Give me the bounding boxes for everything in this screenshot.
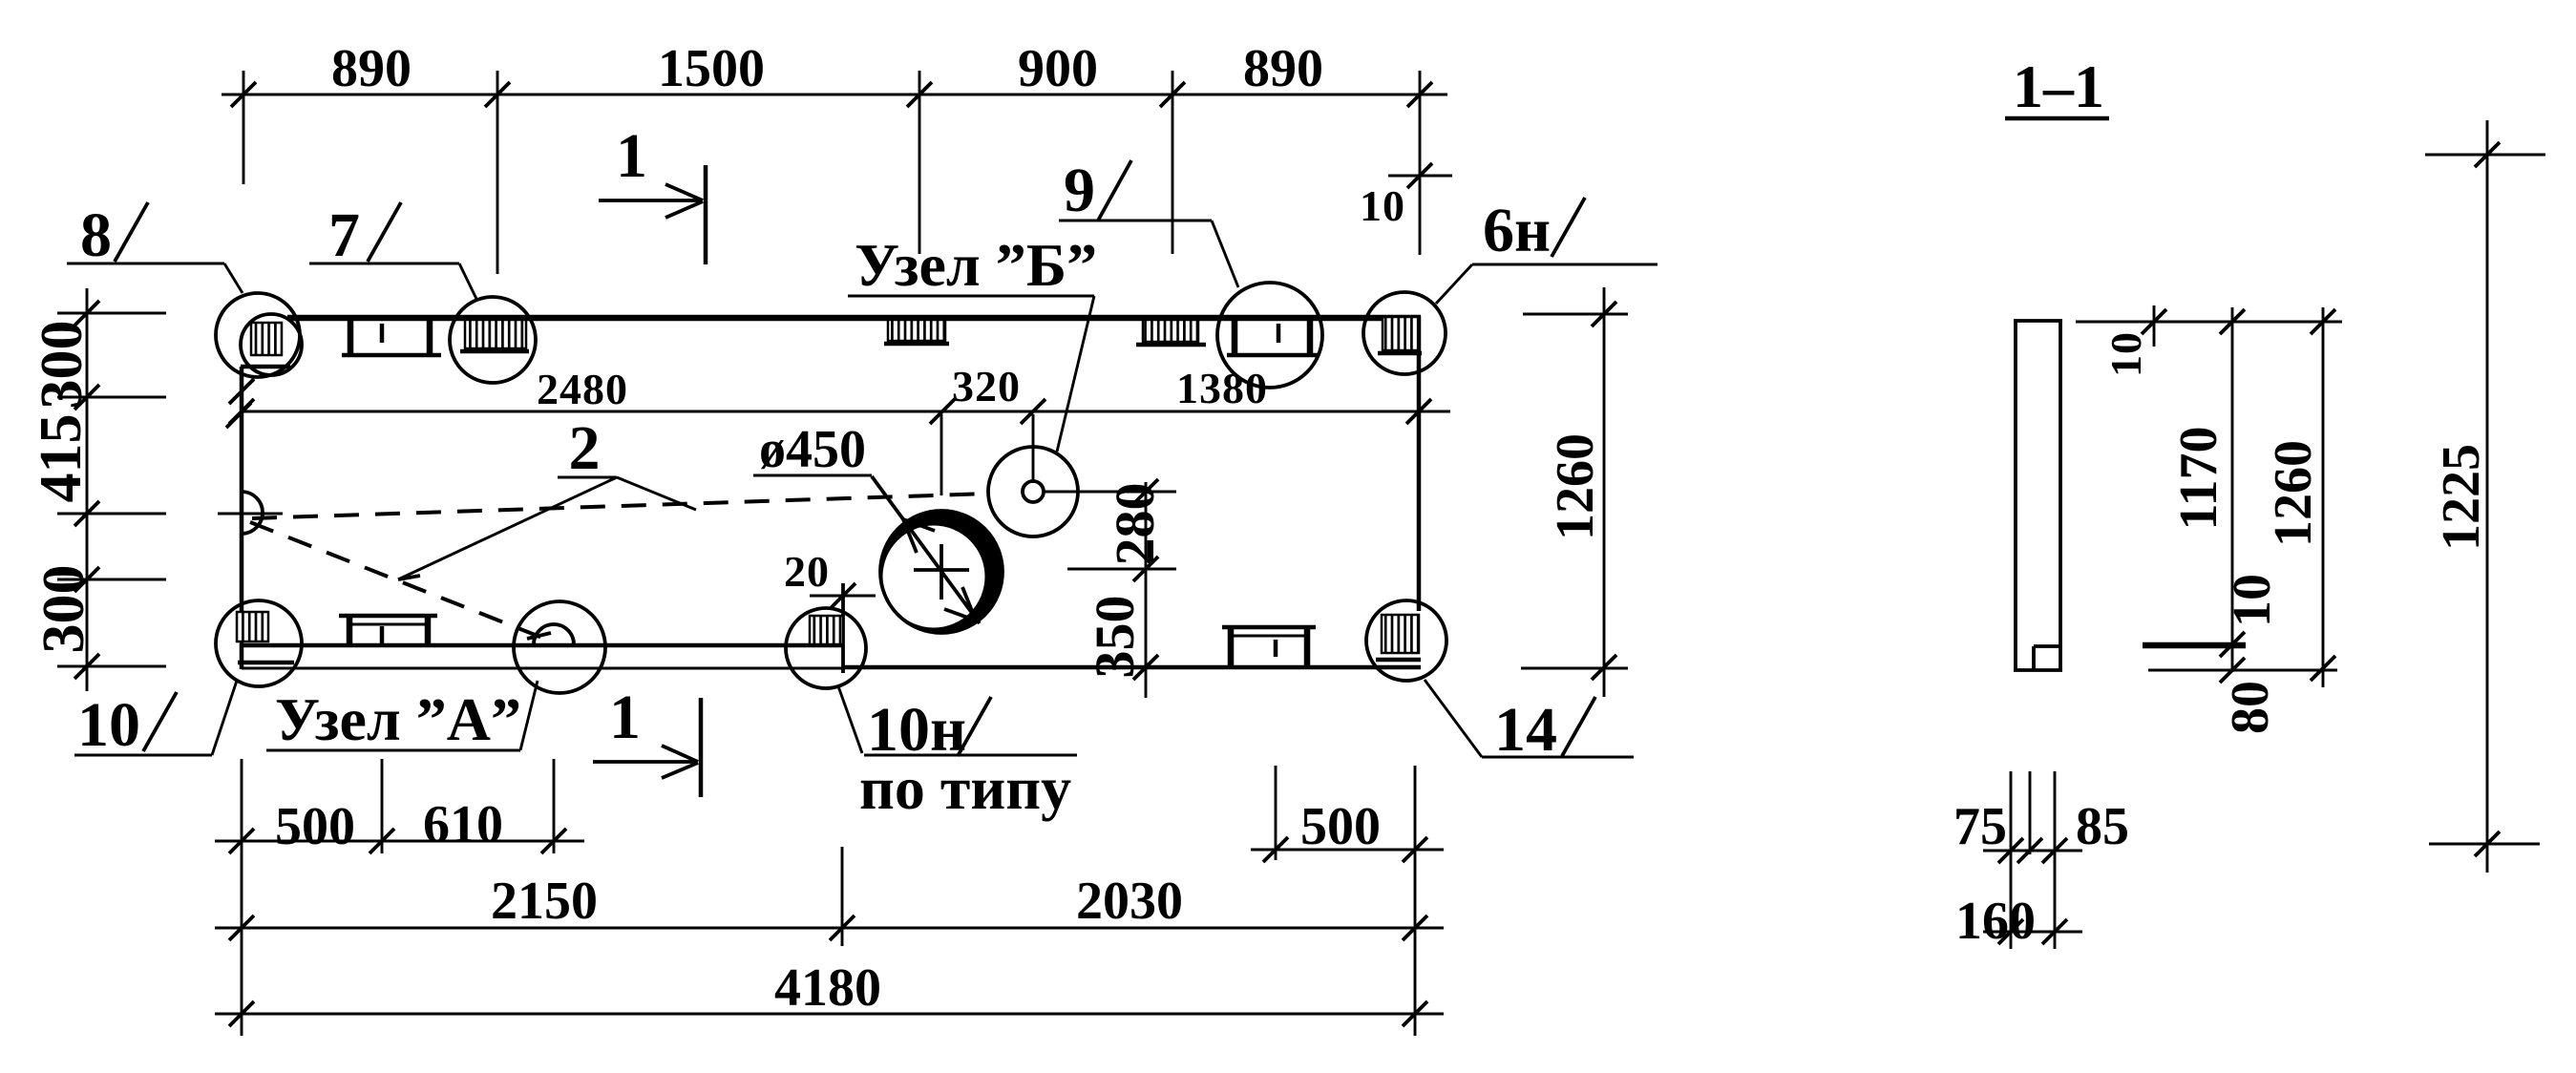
svg-text:85: 85 — [2076, 797, 2129, 856]
svg-text:890: 890 — [331, 39, 412, 98]
svg-text:Узел ”Б”: Узел ”Б” — [855, 231, 1097, 299]
svg-text:10: 10 — [77, 690, 140, 760]
svg-text:280: 280 — [1104, 483, 1166, 566]
svg-text:320: 320 — [952, 362, 1021, 410]
svg-text:6н: 6н — [1483, 196, 1551, 265]
svg-text:1500: 1500 — [658, 39, 765, 98]
svg-text:350: 350 — [1084, 596, 1146, 679]
svg-text:ø450: ø450 — [759, 420, 866, 479]
svg-text:4180: 4180 — [774, 958, 881, 1018]
svg-text:2: 2 — [569, 413, 601, 483]
svg-text:610: 610 — [423, 795, 503, 854]
svg-text:1–1: 1–1 — [2013, 53, 2104, 120]
svg-text:9: 9 — [1064, 156, 1095, 225]
svg-text:900: 900 — [1018, 39, 1098, 98]
svg-text:1260: 1260 — [1546, 433, 1605, 540]
svg-text:7: 7 — [328, 200, 360, 270]
svg-text:8: 8 — [80, 200, 112, 270]
svg-text:20: 20 — [784, 547, 830, 596]
svg-text:300: 300 — [30, 321, 95, 410]
svg-text:1380: 1380 — [1176, 364, 1268, 412]
svg-text:890: 890 — [1243, 39, 1323, 98]
svg-text:1260: 1260 — [2264, 440, 2323, 547]
svg-text:300: 300 — [32, 565, 96, 654]
svg-text:10: 10 — [1360, 181, 1405, 230]
svg-text:1225: 1225 — [2432, 444, 2491, 551]
svg-text:Узел ”А”: Узел ”А” — [275, 685, 521, 753]
svg-text:2030: 2030 — [1076, 872, 1183, 931]
svg-text:160: 160 — [1955, 892, 2036, 951]
svg-text:14: 14 — [1494, 695, 1557, 765]
svg-text:1170: 1170 — [2169, 427, 2228, 531]
svg-text:75: 75 — [1953, 797, 2007, 856]
svg-text:415: 415 — [29, 414, 94, 503]
svg-text:500: 500 — [1300, 797, 1381, 856]
svg-text:10: 10 — [2101, 331, 2150, 377]
svg-text:500: 500 — [275, 797, 355, 856]
svg-text:2480: 2480 — [537, 365, 628, 413]
svg-text:1: 1 — [609, 683, 641, 752]
svg-text:по типу: по типу — [859, 754, 1071, 822]
svg-text:80: 80 — [2221, 681, 2280, 734]
svg-text:10: 10 — [2223, 574, 2282, 627]
svg-text:1: 1 — [616, 121, 647, 191]
svg-text:2150: 2150 — [491, 872, 598, 931]
